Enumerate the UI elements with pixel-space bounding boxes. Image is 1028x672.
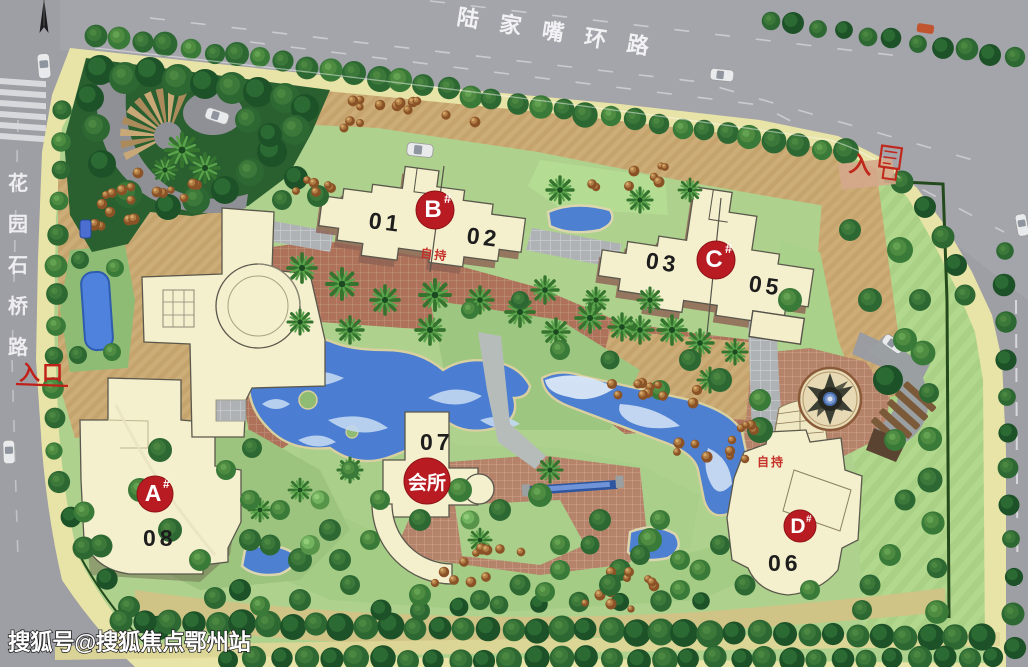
svg-text:花: 花 — [8, 172, 28, 195]
svg-text:会所: 会所 — [408, 471, 446, 494]
svg-text:06: 06 — [768, 550, 802, 576]
svg-text:桥: 桥 — [8, 295, 29, 318]
svg-text:入: 入 — [848, 150, 874, 179]
svg-text:自持: 自持 — [757, 454, 785, 469]
svg-text:01: 01 — [367, 207, 404, 237]
svg-text:03: 03 — [644, 247, 681, 277]
svg-text:#: # — [444, 191, 452, 206]
svg-text:#: # — [725, 241, 733, 256]
svg-text:#: # — [806, 514, 812, 525]
svg-text:07: 07 — [420, 429, 454, 455]
svg-text:B: B — [424, 196, 441, 223]
svg-text:A: A — [145, 480, 162, 506]
svg-text:#: # — [163, 477, 170, 491]
svg-text:入口: 入口 — [19, 362, 65, 385]
svg-text:05: 05 — [747, 270, 784, 300]
svg-text:D: D — [790, 515, 805, 538]
svg-text:石: 石 — [7, 255, 28, 277]
svg-text:路: 路 — [8, 335, 29, 359]
svg-text:08: 08 — [143, 525, 177, 551]
svg-text:搜狐号@搜狐焦点鄂州站: 搜狐号@搜狐焦点鄂州站 — [8, 629, 251, 655]
svg-text:02: 02 — [465, 222, 502, 252]
svg-text:C: C — [705, 246, 722, 273]
svg-text:园: 园 — [8, 214, 28, 236]
